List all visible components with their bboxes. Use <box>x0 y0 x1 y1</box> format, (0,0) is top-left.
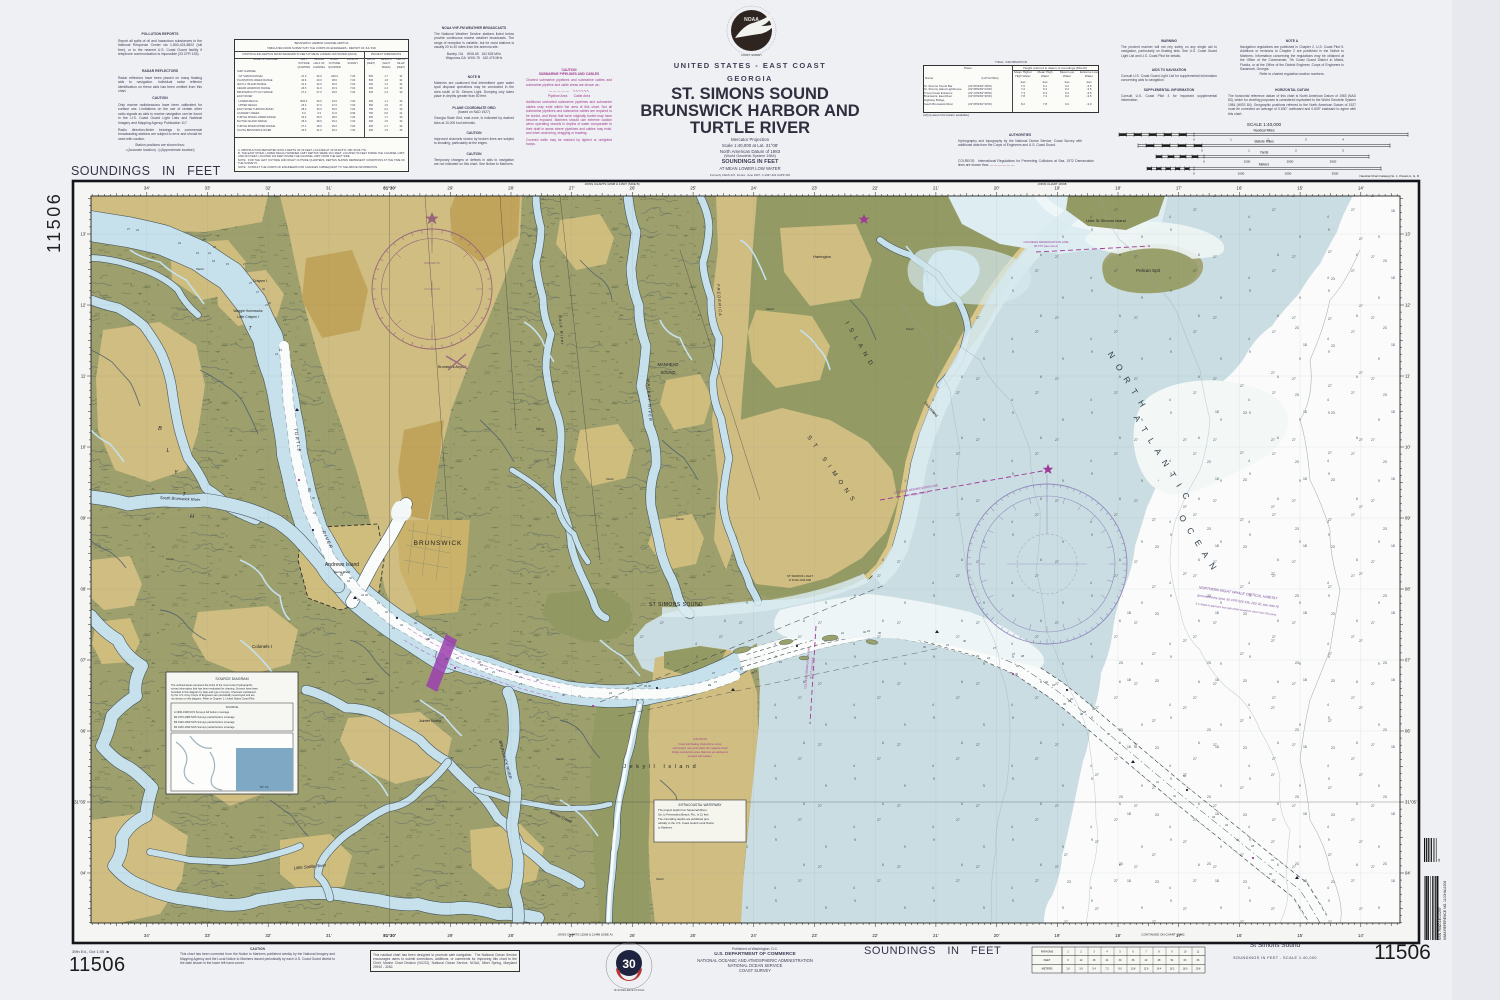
svg-text:32': 32' <box>265 186 271 191</box>
svg-text:15': 15' <box>1297 933 1303 938</box>
svg-text:30: 30 <box>308 487 312 491</box>
svg-text:39: 39 <box>1437 858 1441 862</box>
svg-text:2000: 2000 <box>1285 172 1292 176</box>
svg-text:15: 15 <box>740 667 744 671</box>
svg-text:24: 24 <box>313 511 317 515</box>
svg-text:NIMA REFERENCE NO. 1100HA11506: NIMA REFERENCE NO. 1100HA11506 <box>1443 881 1447 940</box>
svg-text:32: 32 <box>1134 745 1138 749</box>
svg-text:survey information that has be: survey information that has been evaluat… <box>171 686 259 690</box>
svg-text:34: 34 <box>1225 823 1229 827</box>
svg-text:The outlined areas represent t: The outlined areas represent the limits … <box>171 683 253 687</box>
svg-text:30: 30 <box>636 698 640 702</box>
svg-text:27: 27 <box>993 646 997 650</box>
svg-text:30: 30 <box>1236 838 1240 842</box>
svg-text:30: 30 <box>268 301 272 305</box>
svg-text:29': 29' <box>447 933 453 938</box>
svg-text:1000: 1000 <box>1244 160 1251 164</box>
svg-text:22': 22' <box>872 186 878 191</box>
svg-text:30: 30 <box>622 957 636 971</box>
svg-text:odically in the U.S. Coast: odically in the U.S. Coast Guard Local N… <box>658 821 714 825</box>
svg-text:81° 12': 81° 12' <box>260 785 269 789</box>
svg-text:30: 30 <box>262 287 266 291</box>
svg-text:30: 30 <box>1107 732 1111 736</box>
svg-text:15: 15 <box>196 251 200 255</box>
svg-text:Y: Y <box>174 470 178 476</box>
svg-text:10': 10' <box>81 445 87 450</box>
svg-text:14': 14' <box>1358 933 1364 938</box>
svg-text:B4 1900-1939 NOS Survey: B4 1900-1939 NOS Surveys partial bottom … <box>174 725 235 729</box>
svg-text:21': 21' <box>933 186 939 191</box>
svg-text:27: 27 <box>485 667 489 671</box>
svg-text:21: 21 <box>946 643 950 647</box>
svg-text:16.2: 16.2 <box>1170 968 1175 971</box>
svg-text:bridge construction area. M: bridge construction area. Mariners are a… <box>672 750 729 754</box>
svg-text:JOINS CHARTS 11506 & 11489 (SI: JOINS CHARTS 11506 & 11489 (SIDE A) <box>557 933 612 937</box>
svg-text:Crispen I: Crispen I <box>253 279 267 283</box>
svg-text:26': 26' <box>630 933 636 938</box>
svg-text:MAGNETIC: MAGNETIC <box>424 261 441 265</box>
svg-text:proceed with caution.: proceed with caution. <box>688 754 713 758</box>
svg-text:24: 24 <box>136 228 140 232</box>
svg-text:22': 22' <box>872 933 878 938</box>
svg-text:30: 30 <box>562 693 566 697</box>
svg-text:Little Crispen I: Little Crispen I <box>237 315 259 319</box>
svg-text:L: L <box>166 448 169 454</box>
svg-text:21: 21 <box>208 251 212 255</box>
svg-text:13': 13' <box>81 232 87 237</box>
svg-text:H: H <box>190 514 194 520</box>
svg-text:18: 18 <box>347 579 351 583</box>
svg-text:27: 27 <box>243 262 247 266</box>
svg-text:31: 31 <box>1173 794 1177 798</box>
svg-text:15: 15 <box>279 348 283 352</box>
svg-text:Statute Miles: Statute Miles <box>1254 140 1274 144</box>
svg-text:19': 19' <box>1054 933 1060 938</box>
svg-text:SOUND: SOUND <box>660 370 675 375</box>
svg-text:CAUTION: CAUTION <box>693 737 707 741</box>
svg-text:21: 21 <box>578 694 582 698</box>
svg-text:30: 30 <box>615 695 619 699</box>
svg-text:METERS: METERS <box>1042 967 1053 971</box>
svg-text:Yards: Yards <box>1260 151 1269 155</box>
svg-text:Nautical Chart Catalog No. 1,: Nautical Chart Catalog No. 1, Panels A, … <box>1359 174 1419 178</box>
svg-text:J e k y l l I s l a n d: J e k y l l I s l a n d <box>623 764 696 770</box>
svg-text:17': 17' <box>1176 186 1182 191</box>
svg-text:CONTINUED ON CHART 11502: CONTINUED ON CHART 11502 <box>1141 933 1185 937</box>
svg-text:23': 23' <box>812 933 818 938</box>
svg-text:31: 31 <box>1156 780 1160 784</box>
svg-text:27: 27 <box>712 671 716 675</box>
svg-text:30: 30 <box>878 631 882 635</box>
svg-text:18': 18' <box>1115 186 1121 191</box>
svg-text:04': 04' <box>81 871 87 876</box>
svg-text:by the U.S. Army Corps of Engi: by the U.S. Army Corps of Engineers are … <box>171 693 255 697</box>
svg-text:Waggie Hummocks: Waggie Hummocks <box>233 309 263 313</box>
svg-text:21: 21 <box>708 683 712 687</box>
svg-text:24: 24 <box>275 352 279 356</box>
svg-text:16': 16' <box>1237 186 1243 191</box>
svg-text:15: 15 <box>754 669 758 673</box>
svg-text:INTRACOASTAL WATERWAY: INTRACOASTAL WATERWAY <box>679 803 723 807</box>
svg-text:32: 32 <box>923 645 927 649</box>
svg-text:NOAA: NOAA <box>744 17 759 23</box>
svg-text:24': 24' <box>751 186 757 191</box>
svg-text:09': 09' <box>81 516 87 521</box>
svg-text:27: 27 <box>265 303 269 307</box>
svg-text:80 FT/T (see note A): 80 FT/T (see note A) <box>1034 244 1058 248</box>
svg-text:27: 27 <box>256 290 260 294</box>
svg-text:31': 31' <box>326 186 332 191</box>
svg-text:MANHEAD: MANHEAD <box>658 362 679 367</box>
svg-text:06': 06' <box>1405 729 1411 734</box>
svg-text:31°05': 31°05' <box>74 800 86 805</box>
svg-text:21: 21 <box>283 318 287 322</box>
svg-text:Jointer Island: Jointer Island <box>418 719 442 723</box>
svg-text:24: 24 <box>976 654 980 658</box>
svg-text:28: 28 <box>1083 710 1087 714</box>
svg-text:A 1990-1999 NOS Survey: A 1990-1999 NOS Surveys full bottom cove… <box>174 710 230 714</box>
svg-text:13': 13' <box>1405 232 1411 237</box>
svg-text:ST SIMONS LIGHT: ST SIMONS LIGHT <box>787 574 813 578</box>
svg-text:81°30': 81°30' <box>383 933 396 938</box>
svg-text:31': 31' <box>326 933 332 938</box>
svg-text:23': 23' <box>812 186 818 191</box>
svg-text:30: 30 <box>963 639 967 643</box>
svg-text:Andrews Island: Andrews Island <box>325 562 359 568</box>
svg-text:21': 21' <box>933 933 939 938</box>
svg-text:submerged, may exist within t: submerged, may exist within the magenta … <box>673 746 728 750</box>
svg-text:The controlling depths are: The controlling depths are published per… <box>658 817 710 821</box>
svg-text:The project depth from Sav: The project depth from Savannah River, <box>658 808 708 812</box>
svg-text:26': 26' <box>630 186 636 191</box>
svg-text:27: 27 <box>519 682 523 686</box>
svg-text:18: 18 <box>213 245 217 249</box>
svg-text:Colonels I: Colonels I <box>252 644 272 649</box>
svg-text:27': 27' <box>569 186 575 191</box>
svg-text:30: 30 <box>414 621 418 625</box>
svg-text:NSN 7642014010257: NSN 7642014010257 <box>1438 907 1442 940</box>
svg-text:FATHOMS: FATHOMS <box>1041 950 1054 954</box>
svg-text:2000: 2000 <box>1287 160 1294 164</box>
svg-text:34': 34' <box>144 186 150 191</box>
svg-text:18: 18 <box>445 657 449 661</box>
svg-text:Ga. to Fernandina Beach, F: Ga. to Fernandina Beach, Fla., is 12 fee… <box>658 812 709 816</box>
svg-text:19.8: 19.8 <box>1196 968 1201 971</box>
svg-text:Fixed and floating obstructi: Fixed and floating obstructions, some <box>679 742 723 746</box>
svg-text:31°05': 31°05' <box>1405 800 1417 805</box>
svg-text:20': 20' <box>994 186 1000 191</box>
svg-text:COLREGS DEMARCATION LINE: COLREGS DEMARCATION LINE <box>1024 240 1069 244</box>
svg-text:34: 34 <box>1183 774 1187 778</box>
svg-text:Marsh: Marsh <box>366 677 374 681</box>
svg-text:31: 31 <box>1052 683 1056 687</box>
svg-text:B3 1940-1969 NOS Survey: B3 1940-1969 NOS Surveys partial bottom … <box>174 720 235 724</box>
svg-text:06': 06' <box>81 729 87 734</box>
svg-text:OF EXCELLENCE AT NOAA: OF EXCELLENCE AT NOAA <box>614 989 645 992</box>
svg-text:08': 08' <box>81 587 87 592</box>
svg-text:34: 34 <box>1212 815 1216 819</box>
svg-text:34: 34 <box>1016 664 1020 668</box>
svg-text:24: 24 <box>867 629 871 633</box>
svg-text:3000: 3000 <box>1332 172 1339 176</box>
svg-text:09': 09' <box>1405 516 1411 521</box>
svg-text:29': 29' <box>447 186 453 191</box>
svg-text:24: 24 <box>609 691 613 695</box>
svg-text:16': 16' <box>1237 933 1243 938</box>
svg-text:32': 32' <box>265 933 271 938</box>
svg-text:07': 07' <box>81 658 87 663</box>
svg-text:BRUNSWICK: BRUNSWICK <box>414 540 463 547</box>
svg-text:33': 33' <box>205 186 211 191</box>
svg-text:25': 25' <box>690 186 696 191</box>
svg-text:33': 33' <box>205 933 211 938</box>
svg-text:25': 25' <box>690 933 696 938</box>
svg-text:27: 27 <box>1012 652 1016 656</box>
svg-text:21: 21 <box>284 333 288 337</box>
svg-text:ST SIMONS SOUND: ST SIMONS SOUND <box>649 602 703 608</box>
svg-text:28: 28 <box>1251 844 1255 848</box>
svg-text:08': 08' <box>1405 587 1411 592</box>
svg-text:28: 28 <box>1080 712 1084 716</box>
svg-text:Marsh: Marsh <box>166 557 174 561</box>
svg-text:12.6: 12.6 <box>1144 968 1149 971</box>
svg-text:SOURCE: SOURCE <box>226 705 239 709</box>
svg-text:JOINS CHART 11508: JOINS CHART 11508 <box>1038 182 1067 186</box>
svg-text:Pelican Spit: Pelican Spit <box>1136 268 1161 273</box>
svg-text:18: 18 <box>212 259 216 263</box>
svg-text:14': 14' <box>1358 186 1364 191</box>
svg-text:32: 32 <box>1045 680 1049 684</box>
svg-text:Little St Simons Island: Little St Simons Island <box>1086 218 1126 223</box>
svg-text:32: 32 <box>1269 872 1273 876</box>
svg-text:Marsh: Marsh <box>426 807 434 811</box>
svg-text:15: 15 <box>226 262 230 266</box>
svg-text:81°30': 81°30' <box>383 186 396 191</box>
svg-text:32: 32 <box>478 660 482 664</box>
svg-text:27: 27 <box>202 238 206 242</box>
svg-text:24: 24 <box>987 656 991 660</box>
svg-text:21: 21 <box>492 670 496 674</box>
svg-text:1000: 1000 <box>1238 172 1245 176</box>
svg-text:B: B <box>158 426 162 432</box>
svg-text:12': 12' <box>81 303 87 308</box>
svg-text:10.8: 10.8 <box>1131 968 1136 971</box>
svg-text:19': 19' <box>1054 186 1060 191</box>
svg-text:Marsh: Marsh <box>606 477 614 481</box>
svg-text:21: 21 <box>519 675 523 679</box>
svg-text:30: 30 <box>312 496 316 500</box>
svg-text:30: 30 <box>1063 702 1067 706</box>
svg-text:3000: 3000 <box>1330 160 1337 164</box>
svg-text:14.4: 14.4 <box>1157 968 1162 971</box>
svg-text:FEET: FEET <box>1044 958 1051 962</box>
svg-text:12': 12' <box>1405 303 1411 308</box>
svg-text:24: 24 <box>456 656 460 660</box>
svg-text:32: 32 <box>385 610 389 614</box>
svg-text:15': 15' <box>1297 186 1303 191</box>
svg-text:Marsh: Marsh <box>676 517 684 521</box>
svg-text:28': 28' <box>508 933 514 938</box>
svg-text:21: 21 <box>779 660 783 664</box>
svg-text:Fl R 60s 104ft 18M: Fl R 60s 104ft 18M <box>789 578 811 582</box>
svg-text:18': 18' <box>1115 933 1121 938</box>
svg-text:bounded in this diagram by dat: bounded in this diagram by date and type… <box>171 690 256 694</box>
svg-text:JOINS CHARTS 11508 & 11507 (SI: JOINS CHARTS 11508 & 11507 (SIDE B) <box>584 182 639 186</box>
svg-text:27: 27 <box>127 227 131 231</box>
svg-text:Marsh: Marsh <box>196 267 204 271</box>
svg-text:32: 32 <box>1092 707 1096 711</box>
svg-text:Marsh: Marsh <box>766 307 774 311</box>
svg-text:20': 20' <box>994 933 1000 938</box>
svg-text:Marsh: Marsh <box>536 427 544 431</box>
svg-text:27: 27 <box>714 680 718 684</box>
svg-text:21: 21 <box>392 626 396 630</box>
svg-text:30: 30 <box>1015 672 1019 676</box>
svg-text:07': 07' <box>1405 658 1411 663</box>
svg-text:11': 11' <box>1405 374 1410 379</box>
svg-text:24': 24' <box>751 933 757 938</box>
svg-text:18.0: 18.0 <box>1183 968 1188 971</box>
svg-text:15: 15 <box>377 601 381 605</box>
svg-text:B2 1970-1989 NOS Survey: B2 1970-1989 NOS Surveys partial bottom … <box>174 715 235 719</box>
svg-text:28: 28 <box>1068 699 1072 703</box>
svg-text:30: 30 <box>427 637 431 641</box>
svg-text:21: 21 <box>841 631 845 635</box>
svg-text:11': 11' <box>81 374 86 379</box>
svg-text:32: 32 <box>400 623 404 627</box>
svg-text:(being filled): (being filled) <box>334 570 350 574</box>
svg-text:24: 24 <box>178 241 182 245</box>
svg-text:COAST SURVEY: COAST SURVEY <box>741 53 762 57</box>
svg-text:30: 30 <box>648 684 652 688</box>
svg-text:31: 31 <box>1271 858 1275 862</box>
svg-text:30: 30 <box>365 593 369 597</box>
svg-text:Harrington: Harrington <box>813 255 831 259</box>
svg-text:28': 28' <box>508 186 514 191</box>
svg-text:21: 21 <box>499 669 503 673</box>
svg-text:28: 28 <box>1021 654 1025 658</box>
svg-text:Nautical Miles: Nautical Miles <box>1253 129 1274 133</box>
svg-text:not shown on this diagram. Re: not shown on this diagram. Refer to Chap… <box>171 697 255 701</box>
svg-text:Marsh: Marsh <box>906 327 914 331</box>
svg-text:SCALE 1:40,000: SCALE 1:40,000 <box>1247 122 1282 127</box>
svg-text:Marsh: Marsh <box>656 877 664 881</box>
svg-text:Marsh: Marsh <box>556 757 564 761</box>
svg-text:24: 24 <box>626 686 630 690</box>
svg-text:to Mariners.: to Mariners. <box>658 826 673 830</box>
svg-text:Meters: Meters <box>1259 163 1270 167</box>
svg-text:32: 32 <box>863 630 867 634</box>
svg-text:04': 04' <box>1405 871 1411 876</box>
svg-text:10': 10' <box>1405 445 1411 450</box>
svg-text:30: 30 <box>536 678 540 682</box>
svg-text:34': 34' <box>144 933 150 938</box>
svg-text:SOURCE DIAGRAM: SOURCE DIAGRAM <box>215 677 248 681</box>
svg-text:27: 27 <box>357 598 361 602</box>
